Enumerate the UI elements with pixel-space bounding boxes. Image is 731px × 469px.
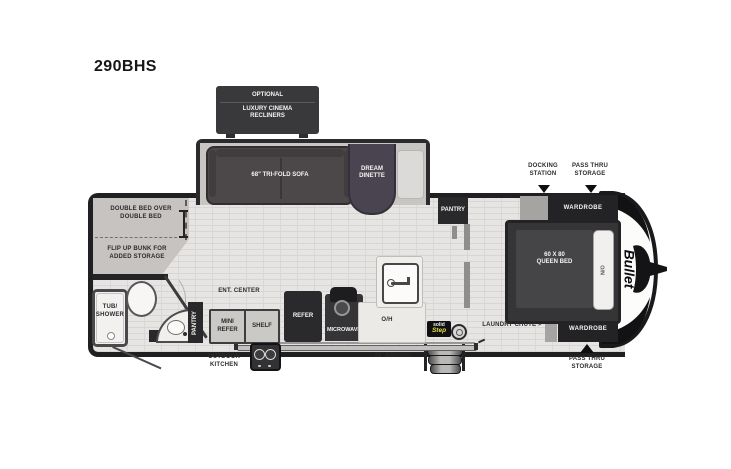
entry-step [430,364,461,374]
laundry-chute-label: LAUNDRY CHUTE > [476,322,548,330]
bunk-ladder-mark [183,211,185,237]
bedroom-wall [464,262,470,308]
tub-label: TUB/ SHOWER [95,304,125,319]
bunk-top-label: DOUBLE BED OVER DOUBLE BED [96,206,186,221]
mini-refer-label: MINI REFER [211,311,244,342]
arrow-down-icon [585,185,597,193]
arrow-up-icon [580,344,594,353]
slide-out: 68" TRI-FOLD SOFA DREAM DINETTE [196,139,430,205]
solid-step-badge: solid Step [427,321,451,337]
optional-label: OPTIONAL [220,89,315,103]
floorplan-canvas: 290BHS OPTIONAL LUXURY CINEMA RECLINERS … [0,0,731,469]
recliner-box-foot [299,134,308,138]
optional-recliners-box: OPTIONAL LUXURY CINEMA RECLINERS [216,86,319,134]
outdoor-kitchen-griddle [250,343,281,371]
wardrobe-top: WARDROBE [548,195,618,223]
awning-end-cap [234,343,238,350]
docking-station-callout: DOCKING STATION [520,163,566,178]
griddle-knob [268,365,271,368]
shelf: SHELF [244,309,280,344]
faucet-spout [407,277,410,285]
tri-fold-sofa: 68" TRI-FOLD SOFA [206,146,354,205]
bunk-ladder-mark [179,236,188,238]
griddle-burner-icon [254,349,265,360]
bunk-divider [95,237,187,238]
bunk-ladder-mark [179,210,188,212]
toilet [126,281,157,317]
burner-icon [334,300,350,316]
tub-drain [107,332,115,340]
pillow-nightstand: N/O [593,230,614,310]
dream-dinette: DREAM DINETTE [348,144,396,215]
pass-thru-callout-top: PASS THRU STORAGE [566,163,614,178]
docking-station [520,196,548,223]
ent-center-label: ENT. CENTER [205,288,273,296]
bedroom-wall [464,224,470,250]
dinette-label: DREAM DINETTE [350,166,394,180]
arrow-down-icon [538,185,550,193]
awning-label: 21' AWNING [335,353,450,361]
dinette-table [397,150,424,199]
pantry-cabinet: PANTRY [188,302,203,343]
griddle-knob [258,365,261,368]
griddle-burner-icon [265,349,276,360]
bunk-bottom-label: FLIP UP BUNK FOR ADDED STORAGE [95,246,179,261]
pass-thru-callout-bottom: PASS THRU STORAGE [562,356,612,371]
model-title: 290BHS [94,58,157,76]
queen-bed-mattress [516,230,593,308]
overhead-cabinet-label: O/H [372,317,402,325]
nightstand-label: N/O [594,231,613,309]
pantry-cabinet-2: PANTRY [438,197,468,224]
recliner-box-foot [226,134,235,138]
sofa-label: 68" TRI-FOLD SOFA [208,148,352,203]
bath-sink-faucet [183,332,187,336]
wall-segment [452,226,457,239]
bath-wall [93,274,168,280]
tub-shower: TUB/ SHOWER [92,289,128,347]
awning-end-cap [474,343,478,350]
outdoor-kitchen-label: OUTDOOR KITCHEN [199,354,249,369]
shelf-label: SHELF [246,311,278,342]
recliners-label: LUXURY CINEMA RECLINERS [216,106,319,120]
certification-seal-icon [451,324,467,340]
mini-refer: MINI REFER [209,309,246,344]
faucet-knob [387,279,395,287]
bed-label: 60 X 80 QUEEN BED [516,252,593,266]
kitchen-sink [382,263,419,304]
refrigerator: REFER [284,291,322,342]
